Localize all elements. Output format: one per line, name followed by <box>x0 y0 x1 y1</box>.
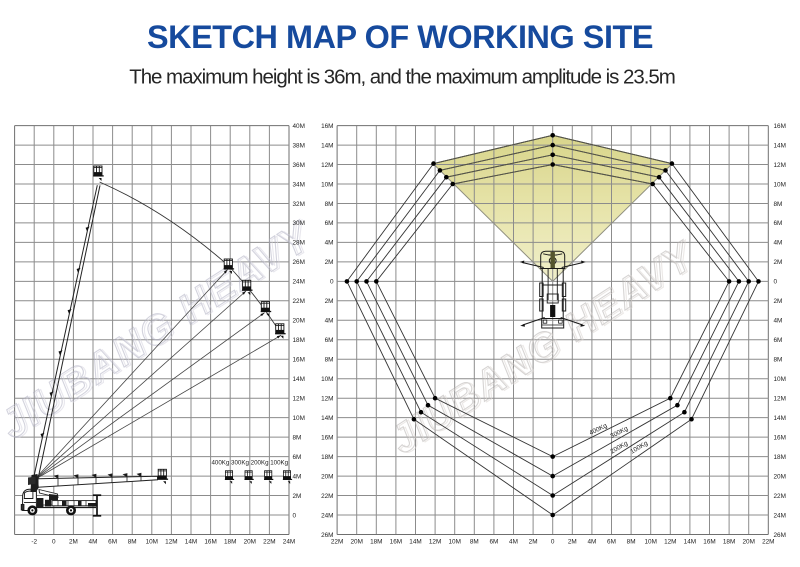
svg-text:6M: 6M <box>325 337 334 344</box>
svg-text:24M: 24M <box>293 279 305 286</box>
svg-text:8M: 8M <box>470 539 479 546</box>
svg-text:16M: 16M <box>321 123 333 130</box>
svg-text:14M: 14M <box>185 539 197 546</box>
svg-text:20M: 20M <box>742 539 754 546</box>
svg-text:24M: 24M <box>321 512 333 519</box>
svg-text:12M: 12M <box>293 396 305 403</box>
svg-text:24M: 24M <box>774 512 786 519</box>
svg-text:4M: 4M <box>293 473 302 480</box>
svg-text:24M: 24M <box>283 539 295 546</box>
svg-text:0: 0 <box>293 512 297 519</box>
svg-text:8M: 8M <box>128 539 137 546</box>
svg-text:14M: 14M <box>293 376 305 383</box>
svg-text:20M: 20M <box>774 473 786 480</box>
svg-text:2M: 2M <box>325 298 334 305</box>
svg-text:16M: 16M <box>703 539 715 546</box>
svg-text:20M: 20M <box>244 539 256 546</box>
svg-text:8M: 8M <box>325 357 334 364</box>
svg-text:20M: 20M <box>350 539 362 546</box>
svg-text:14M: 14M <box>321 415 333 422</box>
svg-text:6M: 6M <box>108 539 117 546</box>
svg-text:0: 0 <box>774 279 778 286</box>
svg-text:4M: 4M <box>587 539 596 546</box>
svg-text:10M: 10M <box>293 415 305 422</box>
svg-text:16M: 16M <box>204 539 216 546</box>
svg-text:16M: 16M <box>390 539 402 546</box>
svg-text:12M: 12M <box>774 396 786 403</box>
svg-text:-2: -2 <box>31 539 37 546</box>
svg-text:6M: 6M <box>774 220 783 227</box>
svg-text:12M: 12M <box>321 396 333 403</box>
svg-text:6M: 6M <box>607 539 616 546</box>
svg-text:200Kg: 200Kg <box>251 460 269 467</box>
svg-text:18M: 18M <box>321 454 333 461</box>
svg-text:10M: 10M <box>448 539 460 546</box>
svg-text:40M: 40M <box>293 123 305 130</box>
svg-text:34M: 34M <box>293 181 305 188</box>
svg-text:20M: 20M <box>293 318 305 325</box>
svg-text:2M: 2M <box>69 539 78 546</box>
svg-text:12M: 12M <box>165 539 177 546</box>
svg-text:6M: 6M <box>774 337 783 344</box>
svg-text:300Kg: 300Kg <box>231 460 249 467</box>
svg-text:2M: 2M <box>325 259 334 266</box>
svg-text:26M: 26M <box>774 532 786 539</box>
svg-text:0: 0 <box>330 279 334 286</box>
svg-text:12M: 12M <box>664 539 676 546</box>
svg-text:8M: 8M <box>627 539 636 546</box>
svg-text:14M: 14M <box>321 142 333 149</box>
svg-text:14M: 14M <box>774 415 786 422</box>
svg-text:0: 0 <box>52 539 56 546</box>
svg-text:2M: 2M <box>529 539 538 546</box>
svg-text:22M: 22M <box>774 493 786 500</box>
svg-text:6M: 6M <box>325 220 334 227</box>
svg-text:SKETCH MAP OF WORKING SITE: SKETCH MAP OF WORKING SITE <box>147 19 653 55</box>
svg-text:6M: 6M <box>293 454 302 461</box>
svg-text:32M: 32M <box>293 201 305 208</box>
svg-text:12M: 12M <box>429 539 441 546</box>
svg-text:8M: 8M <box>774 357 783 364</box>
svg-text:22M: 22M <box>331 539 343 546</box>
svg-text:36M: 36M <box>293 162 305 169</box>
svg-text:16M: 16M <box>321 434 333 441</box>
svg-text:38M: 38M <box>293 142 305 149</box>
svg-text:100Kg: 100Kg <box>270 460 288 467</box>
svg-text:16M: 16M <box>774 123 786 130</box>
svg-text:18M: 18M <box>774 454 786 461</box>
svg-text:0: 0 <box>551 539 555 546</box>
svg-text:2M: 2M <box>774 298 783 305</box>
svg-text:28M: 28M <box>293 240 305 247</box>
svg-text:2M: 2M <box>774 259 783 266</box>
svg-text:22M: 22M <box>293 298 305 305</box>
svg-text:22M: 22M <box>321 493 333 500</box>
svg-text:The maximum height is 36m, and: The maximum height is 36m, and the maxim… <box>129 66 675 89</box>
svg-text:10M: 10M <box>321 376 333 383</box>
svg-text:18M: 18M <box>293 337 305 344</box>
svg-text:4M: 4M <box>774 240 783 247</box>
svg-text:20M: 20M <box>321 473 333 480</box>
svg-text:8M: 8M <box>774 201 783 208</box>
svg-text:6M: 6M <box>489 539 498 546</box>
svg-text:4M: 4M <box>774 318 783 325</box>
svg-text:10M: 10M <box>146 539 158 546</box>
svg-text:12M: 12M <box>321 162 333 169</box>
svg-text:4M: 4M <box>325 318 334 325</box>
svg-text:400Kg: 400Kg <box>211 460 229 467</box>
svg-text:16M: 16M <box>293 357 305 364</box>
svg-text:14M: 14M <box>774 142 786 149</box>
svg-text:30M: 30M <box>293 220 305 227</box>
svg-text:10M: 10M <box>774 376 786 383</box>
svg-text:4M: 4M <box>509 539 518 546</box>
svg-text:2M: 2M <box>293 493 302 500</box>
svg-text:26M: 26M <box>321 532 333 539</box>
svg-text:18M: 18M <box>723 539 735 546</box>
svg-text:8M: 8M <box>325 201 334 208</box>
svg-text:10M: 10M <box>774 181 786 188</box>
svg-text:8M: 8M <box>293 434 302 441</box>
svg-text:26M: 26M <box>293 259 305 266</box>
svg-text:14M: 14M <box>684 539 696 546</box>
svg-text:4M: 4M <box>325 240 334 247</box>
svg-text:12M: 12M <box>774 162 786 169</box>
svg-text:22M: 22M <box>762 539 774 546</box>
svg-text:18M: 18M <box>370 539 382 546</box>
svg-text:10M: 10M <box>321 181 333 188</box>
svg-text:14M: 14M <box>409 539 421 546</box>
svg-text:10M: 10M <box>644 539 656 546</box>
svg-text:2M: 2M <box>568 539 577 546</box>
svg-text:16M: 16M <box>774 434 786 441</box>
svg-text:4M: 4M <box>89 539 98 546</box>
svg-text:22M: 22M <box>263 539 275 546</box>
svg-text:18M: 18M <box>224 539 236 546</box>
